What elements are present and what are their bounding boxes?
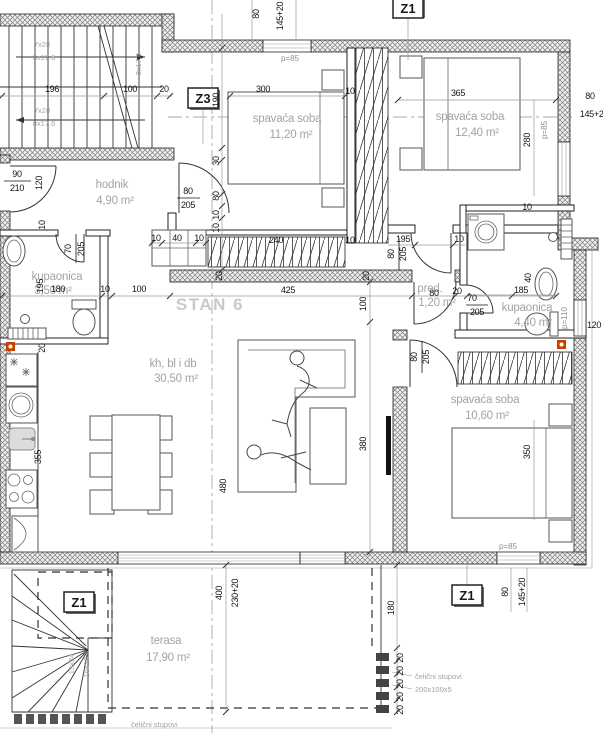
stair-run-label: 8x17.6 (33, 53, 56, 62)
room-area-pred: 1,20 m² (418, 297, 456, 309)
svg-text:20: 20 (395, 705, 405, 715)
dim-190: 190 (211, 93, 221, 107)
dim-10: 10 (100, 284, 110, 294)
dim-20: 20 (214, 271, 224, 281)
dim-40: 40 (172, 233, 182, 243)
dim-180: 180 (386, 601, 396, 615)
bed-bedroom3 (452, 404, 572, 542)
dim-10: 10 (345, 86, 355, 96)
window-bedroom1 (263, 40, 311, 52)
marker-z1-br: Z1 (452, 585, 484, 607)
washing-machine (468, 214, 504, 250)
window-bedroom3 (497, 552, 540, 564)
railing (12, 712, 112, 724)
marker-z1-br-label: Z1 (459, 588, 474, 603)
dim-20: 20 (37, 343, 47, 353)
door-dim-bedroom3: 80205 (409, 341, 431, 373)
sliding-door-terrace (118, 552, 345, 564)
door-dim-entry: 90210 (4, 169, 31, 193)
parapet-label: p=85 (540, 120, 549, 139)
dim-425: 425 (281, 285, 295, 295)
main-staircase (0, 26, 162, 148)
oven-icon (6, 387, 37, 423)
svg-text:205: 205 (181, 200, 195, 210)
dim-185: 185 (514, 285, 528, 295)
window-bedroom2 (558, 142, 570, 196)
exterior-staircase (12, 570, 112, 724)
room-label-bathroom2: kupaonica (502, 302, 553, 314)
marker-z1-top: Z1 (393, 0, 425, 18)
dim-80: 80 (211, 191, 221, 201)
dim-10: 10 (522, 202, 532, 212)
stair-run-label: 7x28 (34, 40, 50, 49)
svg-text:210: 210 (10, 183, 24, 193)
fridge-icon (6, 354, 37, 386)
wardrobe-bedroom3 (458, 352, 572, 384)
door-dim-bedroom1: 80205 (177, 186, 200, 210)
floor-plan-drawing: Z3 Z1 Z1 Z1 hodnik 4,90 m² spavaća soba … (0, 0, 603, 733)
stair-run-label: 16x19.4 (82, 651, 91, 678)
dim-80: 80 (251, 9, 261, 19)
door-bedroom2 (411, 233, 451, 273)
room-area-hodnik: 4,90 m² (96, 195, 134, 207)
dim-80: 80 (429, 288, 439, 298)
marker-z1-top-label: Z1 (400, 1, 415, 16)
parapet-label: p=85 (499, 542, 518, 551)
apartment-label: STAN 6 (176, 295, 244, 314)
svg-text:70: 70 (63, 244, 73, 254)
tv (386, 416, 391, 475)
svg-text:20: 20 (395, 692, 405, 702)
kitchen-sink (9, 428, 35, 450)
dim-20: 20 (452, 286, 462, 296)
dim-350: 350 (522, 445, 532, 459)
steel-columns-note: čelični stupovi (131, 720, 178, 729)
room-area-bedroom1: 11,20 m² (270, 129, 313, 141)
room-area-terasa: 17,90 m² (146, 652, 190, 664)
dim-80: 80 (500, 587, 510, 597)
parapet-label: p=110 (560, 307, 569, 329)
svg-text:205: 205 (421, 350, 431, 364)
dim-240: 240 (269, 235, 283, 245)
dim-30: 30 (211, 156, 221, 166)
room-label-hodnik: hodnik (96, 179, 129, 191)
dim-100: 100 (358, 297, 368, 311)
door-bedroom3 (410, 340, 457, 387)
parapet-label: p=85 (281, 54, 300, 63)
dim-145-20: 145+20 (517, 577, 527, 606)
steel-columns-size: 200x100x5 (415, 685, 452, 694)
dim-195: 195 (35, 279, 45, 293)
marker-z1-stairs-label: Z1 (71, 595, 86, 610)
dim-365: 365 (451, 88, 465, 98)
stair-run-label: 15x24 (67, 654, 76, 674)
stair-run-label: 8x17.6 (33, 119, 56, 128)
svg-text:80: 80 (386, 249, 396, 259)
dim-20: 20 (361, 271, 371, 281)
dim-400: 400 (214, 586, 224, 600)
dim-10: 10 (194, 233, 204, 243)
room-label-terasa: terasa (151, 635, 183, 647)
svg-text:205: 205 (398, 247, 408, 261)
svg-text:90: 90 (12, 169, 22, 179)
dim-300: 300 (256, 84, 270, 94)
svg-text:205: 205 (470, 307, 484, 317)
dim-195: 195 (396, 234, 410, 244)
dim-10: 10 (211, 223, 221, 233)
steel-columns (376, 653, 389, 713)
dim-145-20: 145+20 (275, 1, 285, 30)
dim-380: 380 (358, 437, 368, 451)
room-area-bedroom3: 10,60 m² (465, 410, 509, 422)
wardrobe-bedroom2 (356, 48, 388, 243)
dim-80: 80 (585, 91, 595, 101)
dim-280: 280 (522, 133, 532, 147)
dim-196: 196 (45, 84, 59, 94)
dim-10: 10 (37, 220, 47, 230)
dim-10: 10 (151, 233, 161, 243)
dim-480: 480 (218, 479, 228, 493)
dim-20: 20 (159, 84, 169, 94)
dishwasher-icon (12, 516, 38, 552)
svg-text:20: 20 (395, 679, 405, 689)
toilet (72, 300, 96, 335)
dim-100: 100 (123, 84, 137, 94)
boiler (6, 342, 15, 351)
dim-355: 355 (33, 450, 43, 464)
stove-icon (6, 470, 37, 508)
svg-text:20: 20 (395, 653, 405, 663)
towel-radiator (8, 315, 46, 340)
svg-text:70: 70 (467, 293, 477, 303)
svg-text:80: 80 (409, 352, 419, 362)
room-area-bathroom2: 4,40 m² (514, 317, 552, 329)
room-area-living: 30,50 m² (154, 373, 198, 385)
room-label-bedroom2: spavaća soba (436, 111, 505, 123)
sink (3, 236, 25, 266)
boiler (557, 340, 566, 349)
dim-10: 10 (454, 234, 464, 244)
dim-40: 40 (523, 273, 533, 283)
room-area-bedroom2: 12,40 m² (455, 127, 499, 139)
svg-text:205: 205 (76, 242, 86, 256)
room-label-living: kh, bl i db (149, 358, 196, 370)
stair-run-label: 8x17.6 (134, 53, 143, 76)
dim-120: 120 (587, 320, 601, 330)
window-bathroom2 (574, 300, 586, 336)
dim-180: 180 (51, 284, 65, 294)
room-label-bedroom1: spavaća soba (253, 113, 322, 125)
marker-z3-label: Z3 (195, 91, 210, 106)
dim-10: 10 (345, 235, 355, 245)
room-label-bedroom3: spavaća soba (451, 394, 520, 406)
dim-145-20: 145+20 (580, 109, 603, 119)
marker-z1-stairs: Z1 (64, 592, 96, 614)
stair-run-label: 7x28 (34, 106, 50, 115)
dim-120: 120 (34, 176, 44, 190)
dining-table-set (90, 415, 172, 514)
dim-10: 10 (211, 210, 221, 220)
coffee-table (310, 408, 346, 484)
dim-230-20: 230+20 (230, 578, 240, 607)
svg-text:80: 80 (183, 186, 193, 196)
steel-columns-note: čelični stupovi (415, 672, 462, 681)
floor-plan-page: Z3 Z1 Z1 Z1 hodnik 4,90 m² spavaća soba … (0, 0, 603, 733)
svg-text:20: 20 (395, 666, 405, 676)
door-dim-bathroom1: 70205 (63, 234, 86, 263)
dim-100: 100 (132, 284, 146, 294)
